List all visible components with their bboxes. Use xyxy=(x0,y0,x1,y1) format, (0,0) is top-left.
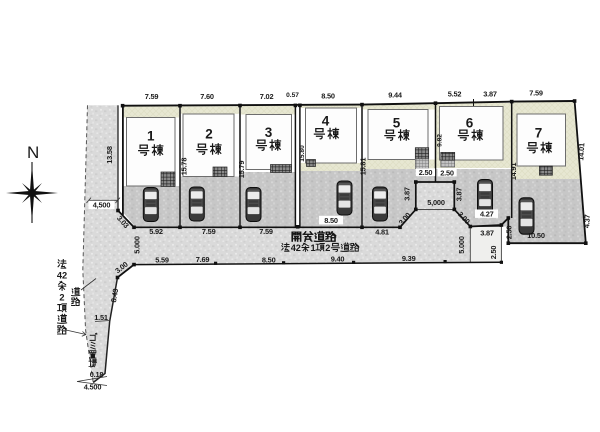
svg-text:15.81: 15.81 xyxy=(359,158,368,176)
svg-text:2.50: 2.50 xyxy=(419,168,433,177)
svg-text:8.50: 8.50 xyxy=(262,256,276,265)
svg-text:2: 2 xyxy=(205,127,213,142)
svg-text:7.02: 7.02 xyxy=(260,92,274,101)
svg-text:5.000: 5.000 xyxy=(133,236,142,254)
svg-text:1: 1 xyxy=(147,129,155,144)
svg-text:6: 6 xyxy=(466,116,474,131)
svg-text:9.39: 9.39 xyxy=(402,254,416,263)
svg-text:3: 3 xyxy=(265,125,273,140)
svg-text:4.37: 4.37 xyxy=(582,214,592,228)
svg-text:42: 42 xyxy=(291,243,301,253)
svg-text:4,500: 4,500 xyxy=(93,201,111,210)
svg-text:13.58: 13.58 xyxy=(105,146,114,164)
svg-text:2: 2 xyxy=(325,243,330,253)
svg-text:14.01: 14.01 xyxy=(576,143,586,161)
svg-text:14.91: 14.91 xyxy=(509,163,518,181)
svg-text:5.92: 5.92 xyxy=(149,227,163,236)
svg-text:5.000: 5.000 xyxy=(457,236,466,254)
svg-text:15.79: 15.79 xyxy=(237,161,246,179)
svg-text:3.87: 3.87 xyxy=(403,187,412,201)
svg-text:7.59: 7.59 xyxy=(202,227,216,236)
svg-text:7.59: 7.59 xyxy=(145,92,159,101)
svg-text:5,000: 5,000 xyxy=(427,198,445,207)
svg-text:7.59: 7.59 xyxy=(259,227,273,236)
svg-text:4.27: 4.27 xyxy=(480,210,494,219)
svg-text:4: 4 xyxy=(322,114,330,129)
svg-text:5.52: 5.52 xyxy=(448,90,462,99)
svg-text:2: 2 xyxy=(59,293,64,303)
svg-text:2.50: 2.50 xyxy=(489,246,498,260)
svg-text:9.82: 9.82 xyxy=(437,134,444,147)
svg-text:0.57: 0.57 xyxy=(286,92,299,99)
svg-text:4.81: 4.81 xyxy=(375,228,389,237)
svg-text:7.69: 7.69 xyxy=(196,255,210,264)
svg-text:5: 5 xyxy=(393,116,401,131)
svg-text:3.87: 3.87 xyxy=(455,188,464,202)
svg-text:N: N xyxy=(27,143,39,162)
svg-text:42: 42 xyxy=(57,271,67,281)
svg-text:9.44: 9.44 xyxy=(388,91,403,100)
svg-text:8.50: 8.50 xyxy=(324,216,338,225)
svg-text:3.87: 3.87 xyxy=(480,228,494,237)
svg-text:8.50: 8.50 xyxy=(321,92,335,101)
svg-text:15.80: 15.80 xyxy=(299,145,306,162)
svg-text:7.60: 7.60 xyxy=(200,92,214,101)
svg-text:3.87: 3.87 xyxy=(483,90,497,99)
svg-text:2.50: 2.50 xyxy=(505,226,514,240)
svg-text:7.59: 7.59 xyxy=(529,89,543,98)
svg-text:5.59: 5.59 xyxy=(155,256,169,265)
svg-text:9.40: 9.40 xyxy=(331,255,345,264)
svg-text:2.50: 2.50 xyxy=(440,168,454,177)
svg-text:15.78: 15.78 xyxy=(180,158,189,176)
svg-text:10.50: 10.50 xyxy=(527,231,545,240)
svg-text:7: 7 xyxy=(535,126,543,141)
svg-text:1: 1 xyxy=(311,243,316,253)
